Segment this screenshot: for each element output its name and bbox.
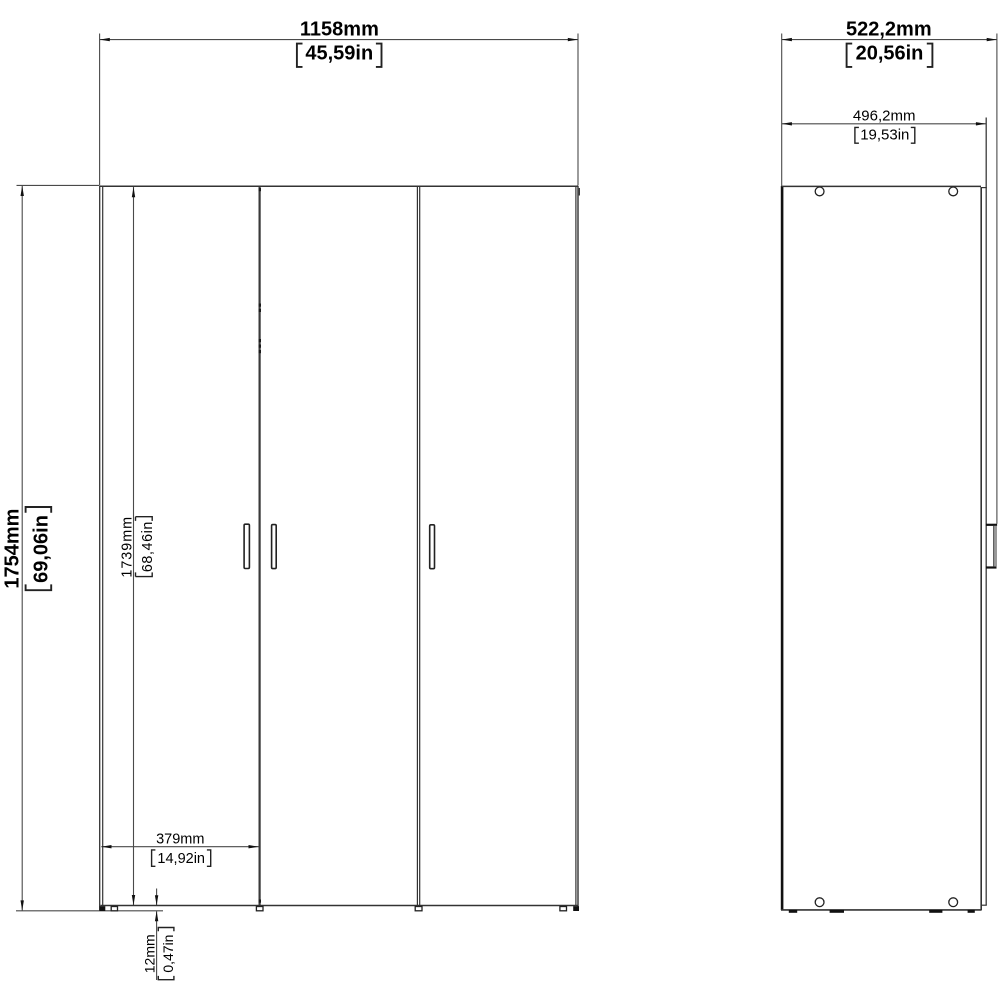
svg-text:379mm: 379mm [156, 831, 204, 847]
svg-text:19,53in: 19,53in [860, 127, 909, 144]
svg-text:14,92in: 14,92in [157, 851, 205, 867]
svg-text:1754mm: 1754mm [2, 509, 24, 589]
svg-text:20,56in: 20,56in [856, 43, 924, 65]
svg-text:1158mm: 1158mm [300, 19, 379, 41]
svg-text:68,46in: 68,46in [140, 521, 156, 572]
svg-text:69,06in: 69,06in [31, 515, 53, 583]
svg-text:1739mm: 1739mm [120, 516, 136, 578]
svg-text:0,47in: 0,47in [160, 935, 176, 973]
svg-text:45,59in: 45,59in [305, 43, 373, 65]
svg-text:496,2mm: 496,2mm [853, 108, 916, 125]
svg-text:12mm: 12mm [142, 934, 158, 973]
svg-text:522,2mm: 522,2mm [846, 19, 932, 41]
